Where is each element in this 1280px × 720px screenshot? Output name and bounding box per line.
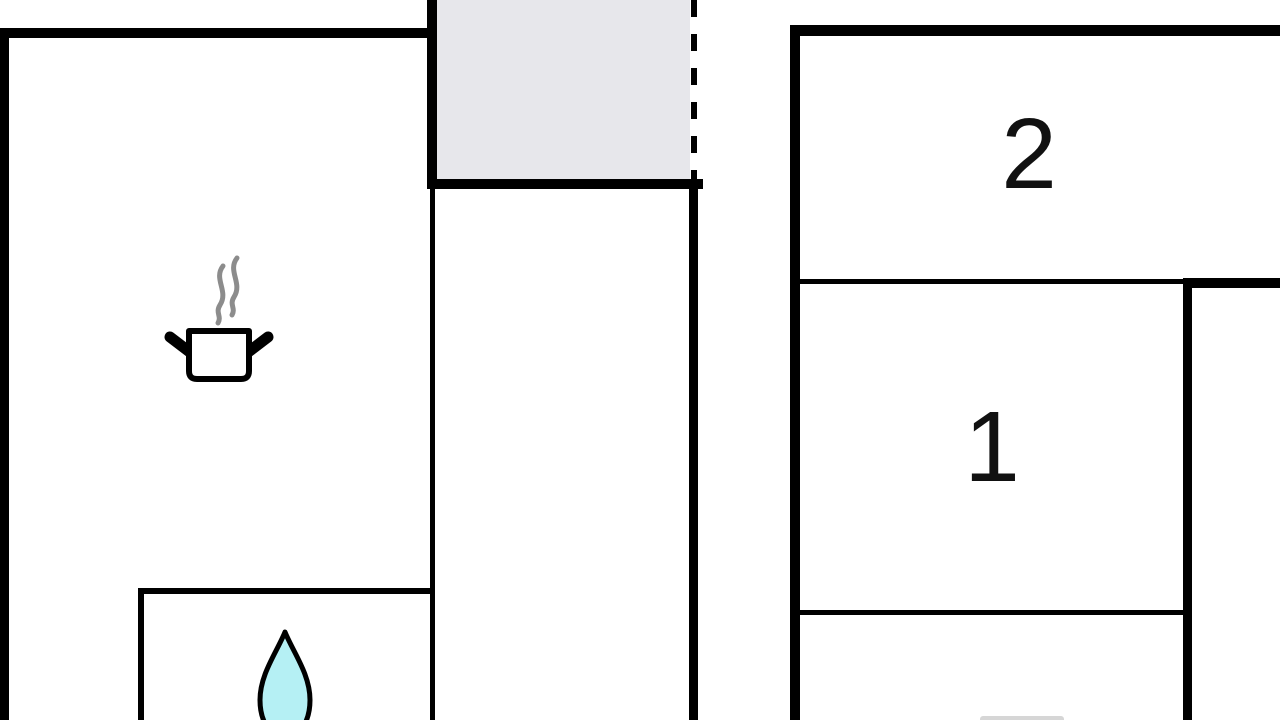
steam-left-icon xyxy=(218,266,223,323)
steam-right-icon xyxy=(232,258,237,315)
wall-corridor-left xyxy=(430,189,435,720)
wall-left-outer xyxy=(0,28,9,720)
water-drop-shape xyxy=(260,632,310,720)
pot-body xyxy=(189,331,249,379)
terrace-area xyxy=(437,0,690,180)
wall-room1-divider xyxy=(797,610,1183,615)
partial-furniture-icon xyxy=(980,716,1064,720)
wall-step-horizontal xyxy=(1183,278,1280,288)
wall-left-top xyxy=(0,28,437,38)
floorplan-canvas: 2 1 xyxy=(0,0,1280,720)
room-2-label: 2 xyxy=(929,104,1129,204)
cooking-pot-icon xyxy=(163,253,275,388)
wall-right-left xyxy=(790,25,800,720)
water-drop-icon xyxy=(254,628,316,720)
room-1-label: 1 xyxy=(892,397,1092,497)
wall-bathroom-left xyxy=(138,588,144,720)
wall-mid-upper xyxy=(427,0,437,189)
water-drop-svg xyxy=(254,628,316,720)
wall-step-vertical xyxy=(1183,278,1192,720)
terrace-dashed-boundary-line xyxy=(691,0,697,179)
wall-corridor-right xyxy=(689,179,698,720)
wall-right-top xyxy=(790,25,1280,36)
wall-room2-divider xyxy=(800,279,1183,284)
wall-terrace-bottom xyxy=(427,179,703,189)
cooking-pot-svg xyxy=(163,253,275,388)
wall-bathroom-top xyxy=(138,588,435,594)
